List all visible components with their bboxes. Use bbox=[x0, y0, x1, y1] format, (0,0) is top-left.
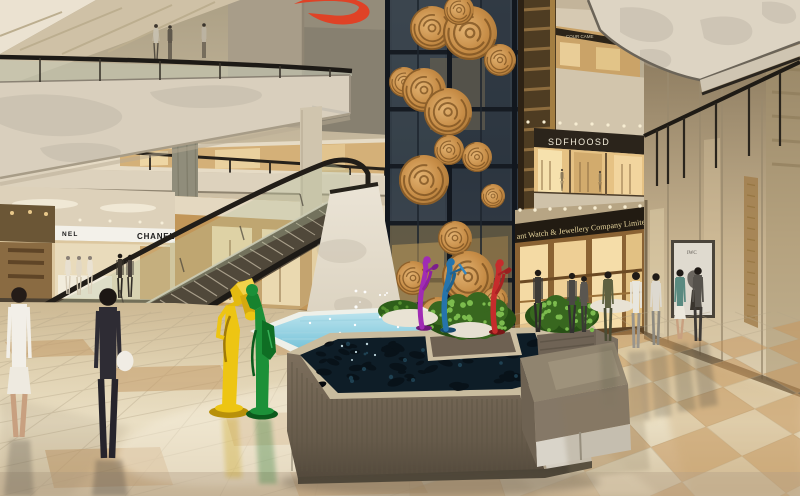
svg-text:COUR CAME: COUR CAME bbox=[566, 34, 594, 39]
svg-text:NEL: NEL bbox=[62, 231, 79, 238]
svg-text:SDFHOOSD: SDFHOOSD bbox=[548, 137, 610, 147]
svg-text:IWC: IWC bbox=[687, 251, 697, 256]
